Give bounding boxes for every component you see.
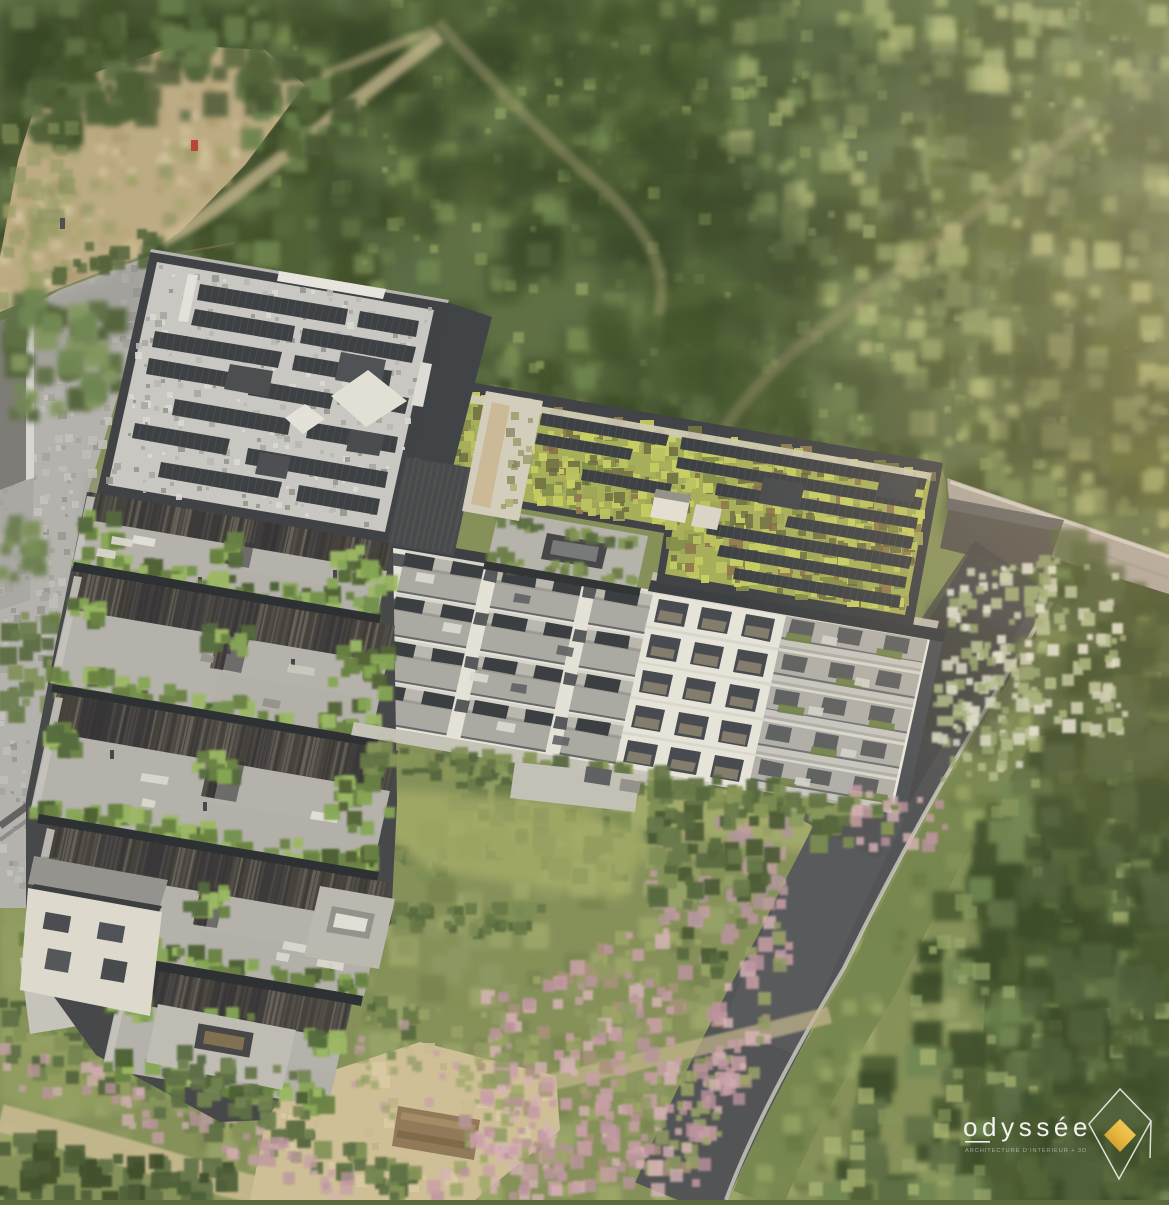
svg-text:ARCHITECTURE D’INTÉRIEUR + 3D: ARCHITECTURE D’INTÉRIEUR + 3D <box>965 1147 1087 1154</box>
svg-text:odyssée: odyssée <box>963 1112 1092 1142</box>
